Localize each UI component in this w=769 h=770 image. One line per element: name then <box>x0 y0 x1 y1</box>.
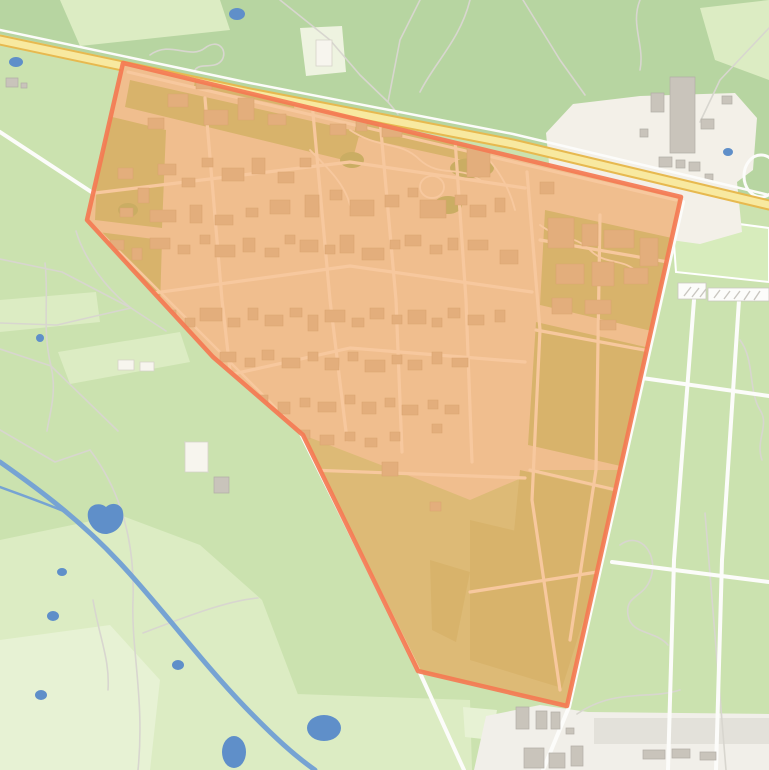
industrial-pad <box>594 718 769 744</box>
map-viewport[interactable] <box>0 0 769 770</box>
map-canvas[interactable] <box>0 0 769 770</box>
